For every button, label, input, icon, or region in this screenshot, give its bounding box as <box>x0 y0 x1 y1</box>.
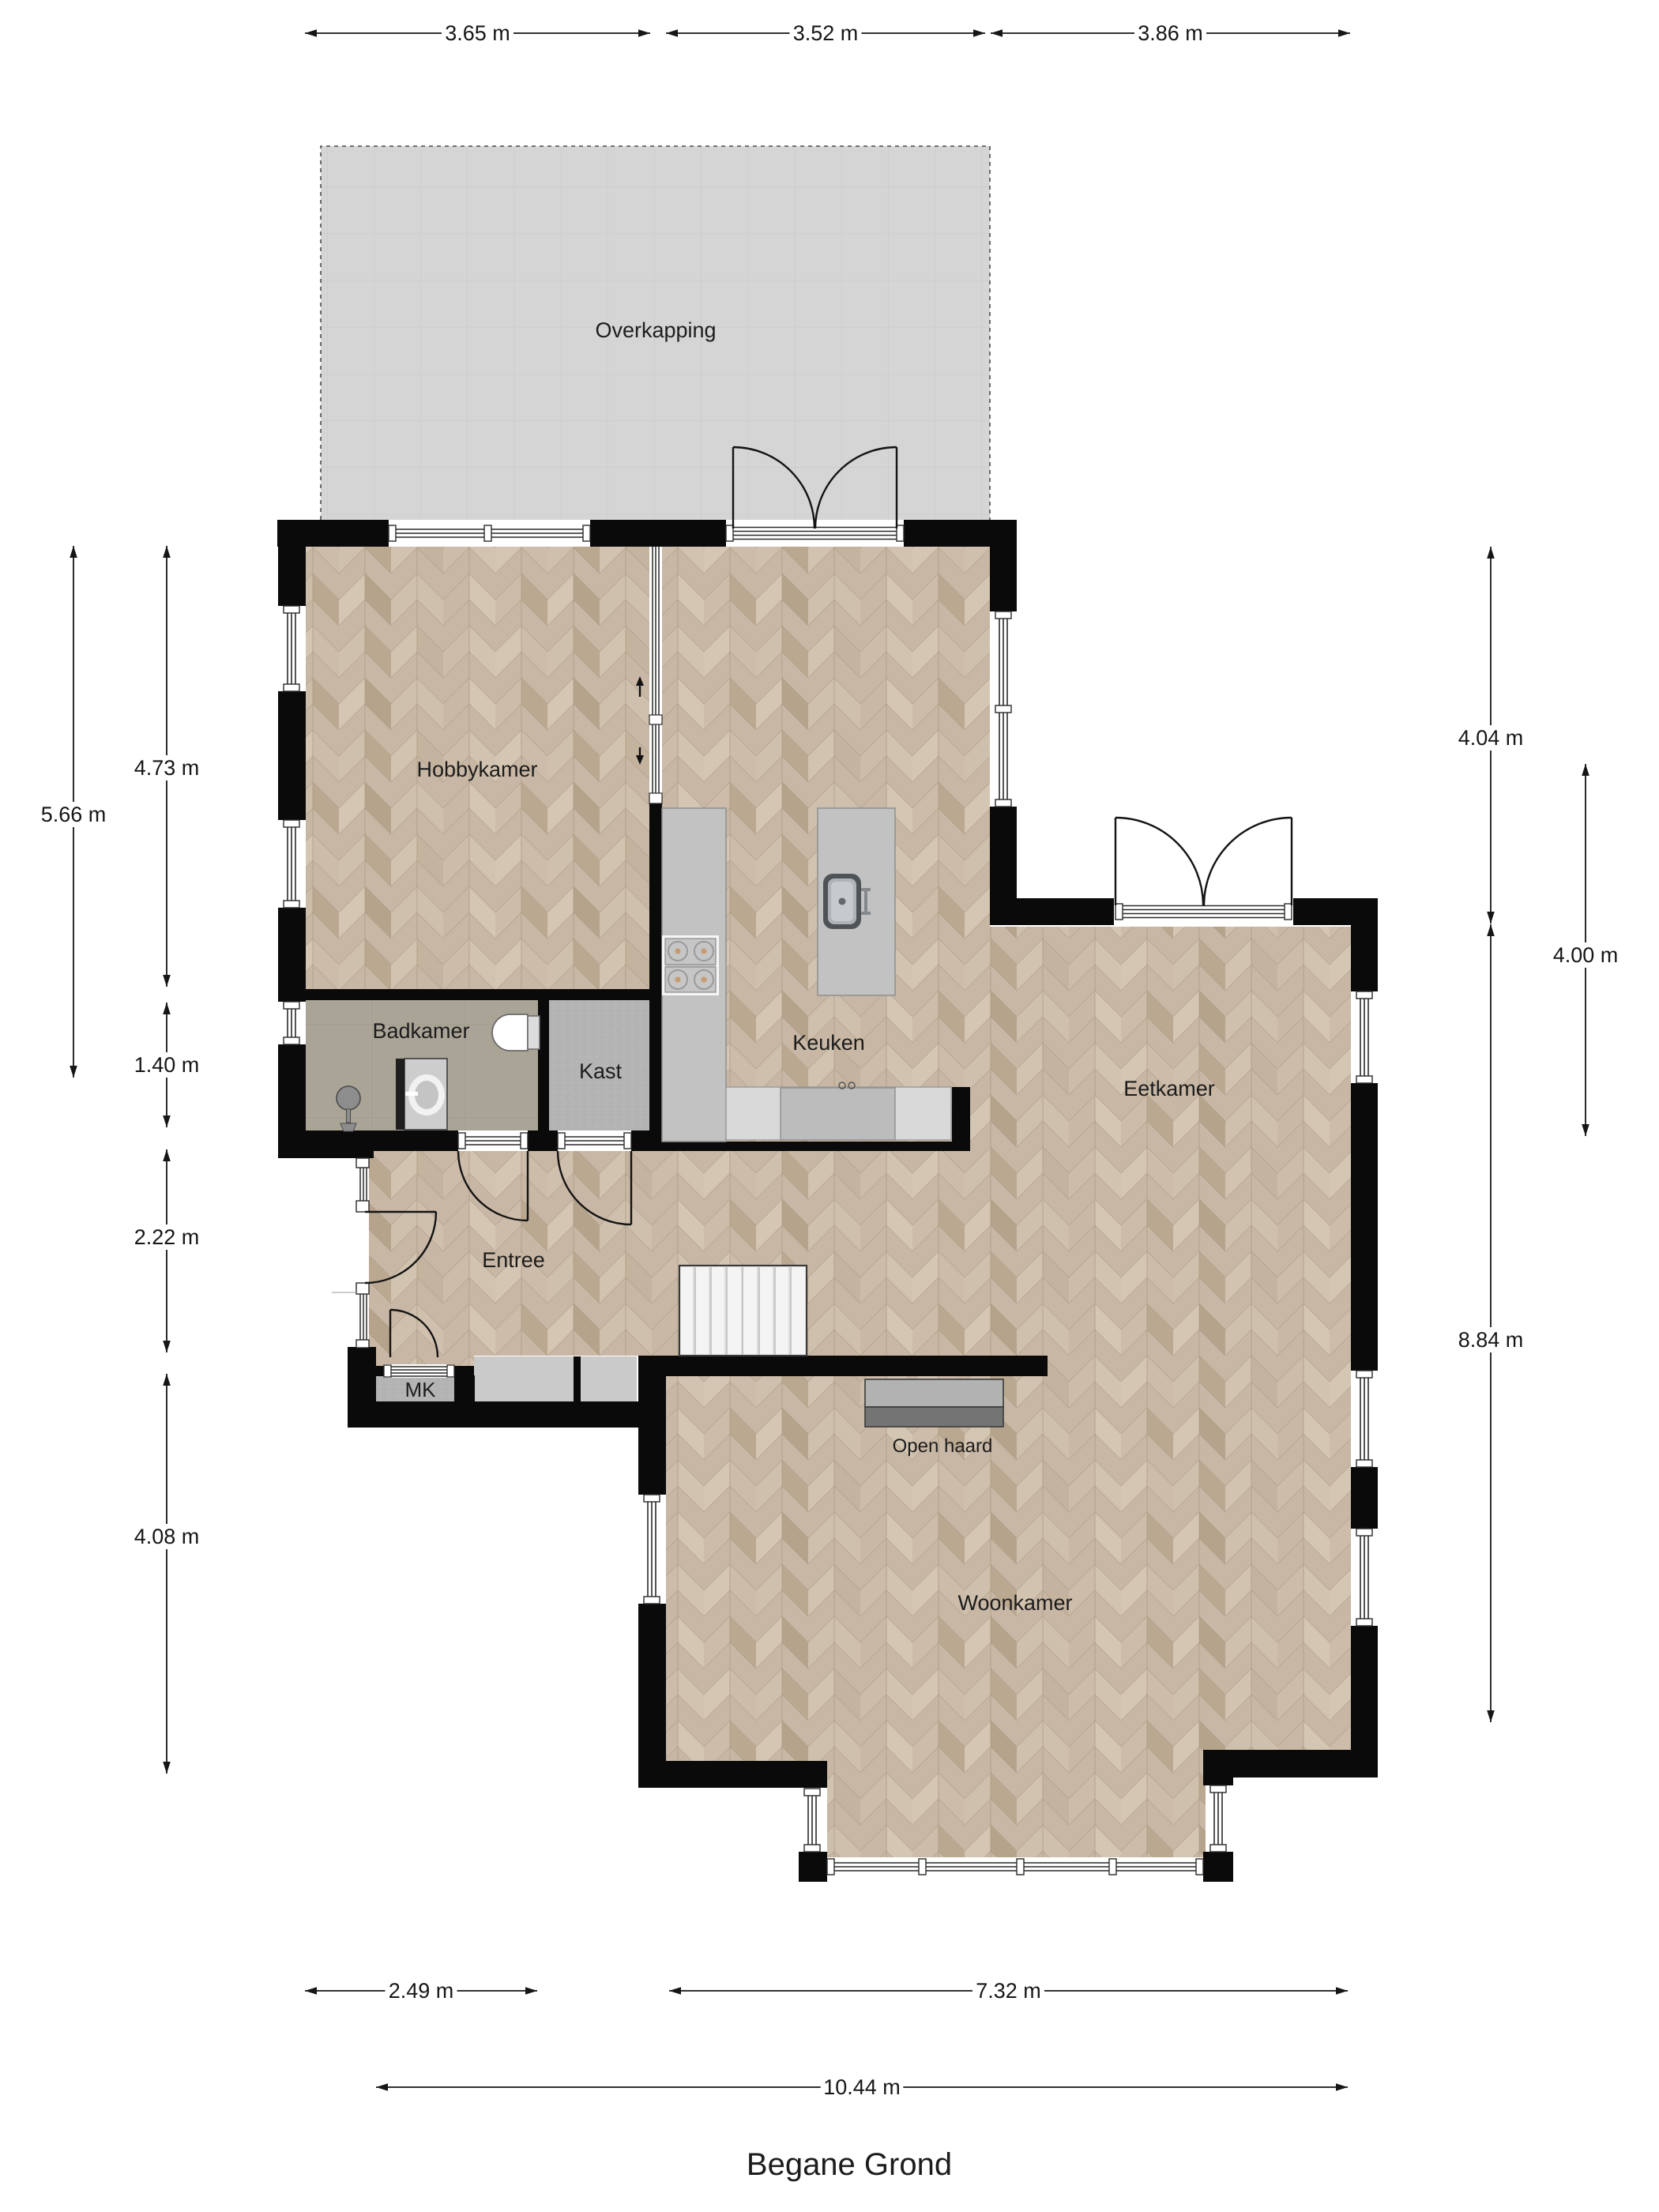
svg-text:4.08 m: 4.08 m <box>134 1525 200 1548</box>
svg-text:4.04 m: 4.04 m <box>1458 726 1524 750</box>
svg-text:3.86 m: 3.86 m <box>1138 21 1203 45</box>
svg-text:Overkapping: Overkapping <box>595 318 716 342</box>
svg-text:Entree: Entree <box>482 1248 545 1272</box>
svg-text:Hobbykamer: Hobbykamer <box>416 758 537 781</box>
svg-text:8.84 m: 8.84 m <box>1458 1328 1524 1352</box>
svg-text:Woonkamer: Woonkamer <box>957 1591 1072 1615</box>
svg-text:3.52 m: 3.52 m <box>793 21 859 45</box>
svg-text:Keuken: Keuken <box>792 1031 865 1055</box>
svg-text:Badkamer: Badkamer <box>372 1019 469 1043</box>
svg-text:10.44 m: 10.44 m <box>823 2075 901 2099</box>
svg-text:4.73 m: 4.73 m <box>134 756 200 780</box>
svg-text:Eetkamer: Eetkamer <box>1123 1077 1215 1100</box>
svg-text:1.40 m: 1.40 m <box>134 1053 200 1077</box>
svg-text:5.66 m: 5.66 m <box>41 803 107 826</box>
svg-text:MK: MK <box>405 1378 437 1401</box>
svg-text:Kast: Kast <box>579 1059 623 1083</box>
svg-text:4.00 m: 4.00 m <box>1553 943 1619 967</box>
svg-text:Begane Grond: Begane Grond <box>747 2147 952 2182</box>
svg-text:7.32 m: 7.32 m <box>976 1979 1041 2003</box>
svg-text:Open haard: Open haard <box>893 1435 993 1457</box>
svg-text:2.49 m: 2.49 m <box>389 1979 454 2003</box>
svg-text:3.65 m: 3.65 m <box>445 21 510 45</box>
svg-text:2.22 m: 2.22 m <box>134 1225 200 1249</box>
